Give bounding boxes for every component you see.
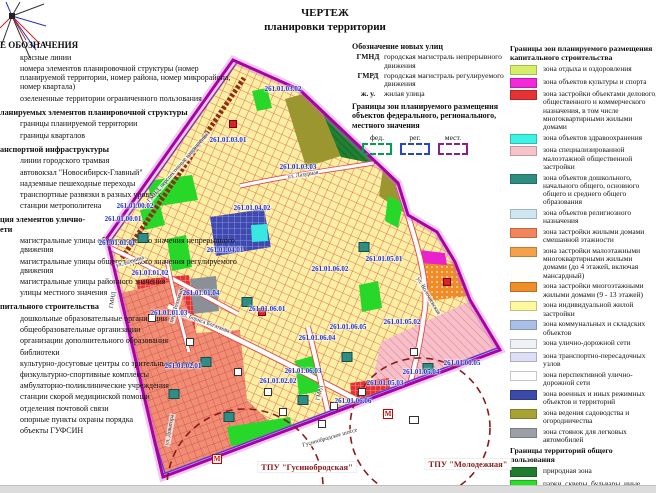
zone-label: зона военных и иных режимных объектов и … [543,390,656,407]
legend-item: транспортные развязки в разных уровнях [0,190,238,199]
zone-label: зона коммунальных и складских объектов [543,320,656,337]
legend-item: опорные пункты охраны порядка [0,415,238,424]
legend-item: зона ведения садоводства и огородничеств… [510,409,656,426]
zone-label: зона транспортно-пересадочных узлов [543,352,656,369]
zone-color-swatch [510,301,537,311]
drawing-title-line2: планировки территории [240,20,410,34]
zone-color-swatch [510,409,537,419]
street-type-label: городская магистраль непрерывного движен… [384,53,522,70]
zone-label: зона индивидуальной жилой застройки [543,301,656,318]
legend-section-header: ция элементов улично- ети [0,215,238,234]
public-territories-header: Границы территорий общего пользования [510,447,656,465]
legend-item: общеобразовательные организации [0,325,238,334]
zone-level-dashed-box [362,143,392,155]
zone-color-swatch [510,209,537,219]
legend-item: зона объектов культуры и спорта [510,78,656,88]
zone-label: природная зона [543,467,656,475]
zone-color-swatch [510,390,537,400]
legend-item: физкультурно-спортивные комплексы [0,370,238,379]
legend-item: организации дополнительного образования [0,336,238,345]
zone-color-swatch [510,90,537,100]
zone-color-swatch [510,174,537,184]
plan-drawing-canvas: ЧЕРТЕЖ планировки территории Е ОБОЗНАЧЕН… [0,0,656,493]
zone-color-swatch [510,371,537,381]
zone-color-swatch [510,467,537,477]
zone-level-label: фед. [362,134,392,143]
legend-item: надземные пешеходные переходы [0,179,238,188]
legend-left-column: Е ОБОЗНАЧЕНИЯ красные линииномера элемен… [0,40,238,437]
legend-item: зона улично-дорожной сети [510,339,656,349]
zone-level: рег. [400,134,430,156]
legend-item: линии городского трамвая [0,156,238,165]
legend-item: зона объектов религиозного назначения [510,209,656,226]
zone-color-swatch [510,65,537,75]
legend-item: границы планируемой территории [0,119,238,128]
legend-item: границы кварталов [0,131,238,140]
zone-color-swatch [510,228,537,238]
legend-item: отделения почтовой связи [0,404,238,413]
zone-label: зона застройки жилыми домами смешанной э… [543,228,656,245]
legend-item: амбулаторно-поликлинические учреждения [0,381,238,390]
horizontal-scrollbar[interactable] [0,485,656,493]
zone-label: зона ведения садоводства и огородничеств… [543,409,656,426]
legend-item: станции метрополитена [0,201,238,210]
legend-item: озелененные территории ограниченного пол… [0,94,238,103]
zone-label: зона застройки многоэтажными жилыми дома… [543,282,656,299]
zone-color-swatch [510,146,537,156]
zone-label: зона стоянок для легковых автомобилей [543,428,656,445]
legend-item: магистральные улицы общегородского значе… [0,257,238,275]
legend-item: автовокзал "Новосибирск-Главный" [0,168,238,177]
zone-label: зона застройки объектами делового, общес… [543,90,656,131]
legend-item: дошкольные образовательные организации [0,314,238,323]
street-type-row: ГМНД городская магистраль непрерывного д… [352,53,522,70]
legend-item: магистральные улицы районного значения [0,277,238,286]
zone-label: зона объектов здравоохранения [543,134,656,142]
zone-label: зона застройки малоэтажными многоквартир… [543,247,656,280]
legend-item: магистральные улицы общегородского значе… [0,236,238,254]
street-type-row: ГМРД городская магистраль регулируемого … [352,72,522,89]
street-type-label: городская магистраль регулируемого движе… [384,72,522,89]
legend-section-header: ланируемых элементов планировочной струк… [0,108,238,117]
street-abbr: ГМНД [352,53,384,70]
legend-item: зона коммунальных и складских объектов [510,320,656,337]
zone-level: мест. [438,134,468,156]
zone-color-swatch [510,282,537,292]
legend-section-header: питального строительства [0,302,238,311]
legend-item: улицы местного значения [0,288,238,297]
legend-item: объекты ГУФСИН [0,426,238,435]
drawing-title: ЧЕРТЕЖ планировки территории [240,6,410,35]
street-type-label: жилая улица [384,90,522,99]
zone-color-swatch [510,428,537,438]
legend-item: зона застройки жилыми домами смешанной э… [510,228,656,245]
zone-color-swatch [510,78,537,88]
legend-item: культурно-досуговые центры со зрительным… [0,359,238,368]
zone-label: зона отдыха и оздоровления [543,65,656,73]
legend-item: зона отдыха и оздоровления [510,65,656,75]
zone-label: зона перспективной улично-дорожной сети [543,371,656,388]
zone-levels-header: Границы зон планируемого размещения объе… [352,102,522,131]
street-abbr: ГМРД [352,72,384,89]
legend-item: библиотеки [0,348,238,357]
zone-label: зона объектов культуры и спорта [543,78,656,86]
zone-label: зона специализированной малоэтажной обще… [543,146,656,171]
legend-item: природная зона [510,467,656,477]
legend-item: красные линии [0,53,238,62]
zone-level-dashed-box [400,143,430,155]
legend-item: зона застройки объектами делового, общес… [510,90,656,131]
legend-new-streets: Обозначение новых улиц ГМНД городская ма… [352,42,522,155]
zone-label: зона объектов дошкольного, начального об… [543,174,656,207]
zone-level: фед. [362,134,392,156]
legend-item: зона индивидуальной жилой застройки [510,301,656,318]
new-streets-header: Обозначение новых улиц [352,42,522,51]
legend-item: зона застройки многоэтажными жилыми дома… [510,282,656,299]
legend-item: зона транспортно-пересадочных узлов [510,352,656,369]
legend-item: зона объектов дошкольного, начального об… [510,174,656,207]
legend-item: зона объектов здравоохранения [510,134,656,144]
zone-color-swatch [510,320,537,330]
drawing-title-line1: ЧЕРТЕЖ [240,6,410,20]
zone-color-swatch [510,134,537,144]
zone-color-swatch [510,247,537,257]
street-type-row: ж. у. жилая улица [352,90,522,99]
zone-level-label: мест. [438,134,468,143]
legend-item: станции скорой медицинской помощи [0,392,238,401]
legend-item: зона стоянок для легковых автомобилей [510,428,656,445]
zone-level-dashed-box [438,143,468,155]
legend-section-header: анспортной инфраструктуры [0,145,238,154]
capital-construction-header: Границы зон планируемого размещения капи… [510,45,656,63]
zone-color-swatch [510,352,537,362]
legend-item: зона перспективной улично-дорожной сети [510,371,656,388]
zone-color-swatch [510,339,537,349]
zone-label: зона улично-дорожной сети [543,339,656,347]
zone-level-label: рег. [400,134,430,143]
zone-label: зона объектов религиозного назначения [543,209,656,226]
street-abbr: ж. у. [352,90,384,99]
legend-item: зона военных и иных режимных объектов и … [510,390,656,407]
legend-item: зона специализированной малоэтажной обще… [510,146,656,171]
legend-item: номера элементов планировочной структуры… [0,64,238,91]
legend-right-column: Границы зон планируемого размещения капи… [510,42,656,493]
legend-header: Е ОБОЗНАЧЕНИЯ [0,40,238,50]
legend-item: зона застройки малоэтажными многоквартир… [510,247,656,280]
